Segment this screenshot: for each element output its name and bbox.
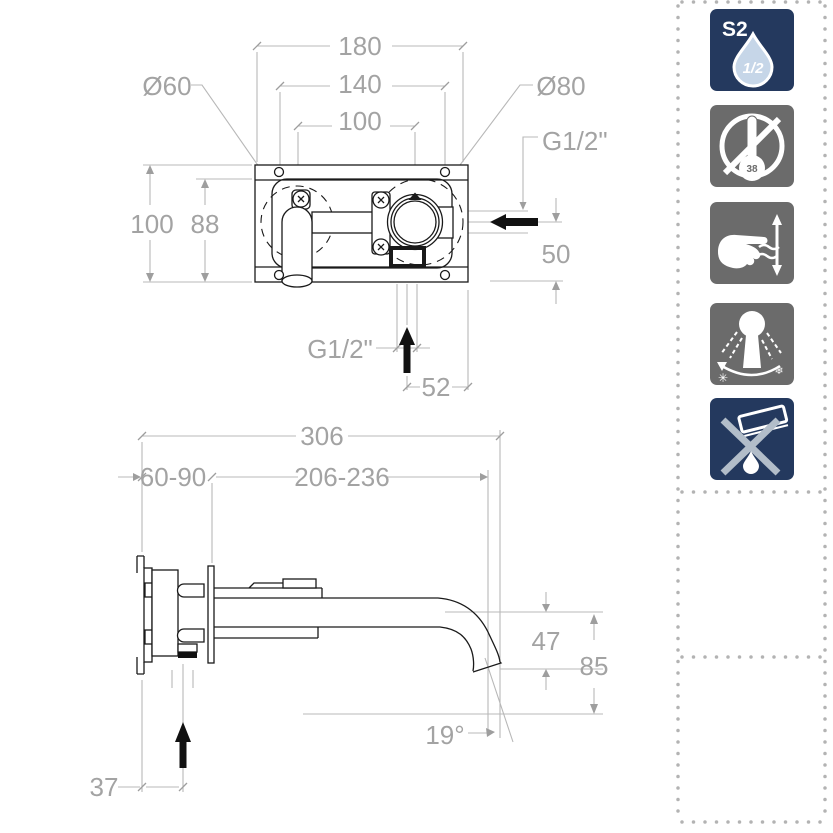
dim-top-inner-height: 88 [191,209,220,239]
spec-sheet-page: 180 140 100 Ø60 Ø80 G1/2" 100 [0,0,833,833]
inlet-port [178,652,197,658]
dim-top-center-spacing: 100 [338,106,381,136]
inlet-flow-arrow-icon [490,214,538,230]
spout-union [388,195,443,250]
dim-side-overall-height: 85 [580,651,609,681]
flow-class-label: S2 [722,18,748,41]
top-view-drawing: 180 140 100 Ø60 Ø80 G1/2" 100 [130,31,607,402]
adjustable-spray-icon: ✳ ❄ [710,303,794,385]
dim-top-overall-width: 180 [338,31,381,61]
escutcheon-plate [208,566,214,663]
label-rosette-large: Ø80 [536,71,585,101]
dim-side-spout-drop: 47 [532,626,561,656]
flow-fraction-label: 1/2 [743,60,765,77]
supply-arrow-icon [175,722,191,768]
label-rosette-small: Ø60 [142,71,191,101]
feature-icon-panel: S2 1/2 38 [710,9,794,480]
dim-top-outlet-offset: 52 [422,372,451,402]
dim-side-wall-adjust: 60-90 [140,462,207,492]
wall-bracket [144,568,152,662]
hot-symbol-icon: ✳ [718,371,728,385]
side-view-drawing: 306 60-90 206-236 47 85 19° [90,421,609,802]
valve-cartridge [282,207,312,281]
spout-housing-tab [283,579,316,588]
dim-top-hole-spacing: 140 [338,69,381,99]
shower-head-icon [739,311,765,337]
hand-flow-adjust-icon [710,202,794,284]
valve-body [152,570,178,656]
no-cleaners-icon [710,398,794,480]
thermometer-value: 38 [746,164,758,175]
dim-side-spout-reach: 206-236 [294,462,389,492]
dim-top-inlet-drop: 50 [542,239,571,269]
connecting-bar [312,212,373,233]
flow-class-icon: S2 1/2 [710,9,794,91]
dim-side-total-length: 306 [300,421,343,451]
label-inlet-thread: G1/2" [542,126,608,156]
outlet-flow-arrow-icon [399,327,415,373]
dim-top-overall-height: 100 [130,209,173,239]
label-outlet-thread: G1/2" [307,334,373,364]
cold-symbol-icon: ❄ [774,365,783,377]
dim-side-outlet-angle: 19° [425,720,464,750]
no-thermostat-icon: 38 [710,105,794,187]
spout-outline [214,598,501,672]
dim-side-inlet-offset: 37 [90,772,119,802]
technical-drawing-canvas: 180 140 100 Ø60 Ø80 G1/2" 100 [0,0,833,833]
